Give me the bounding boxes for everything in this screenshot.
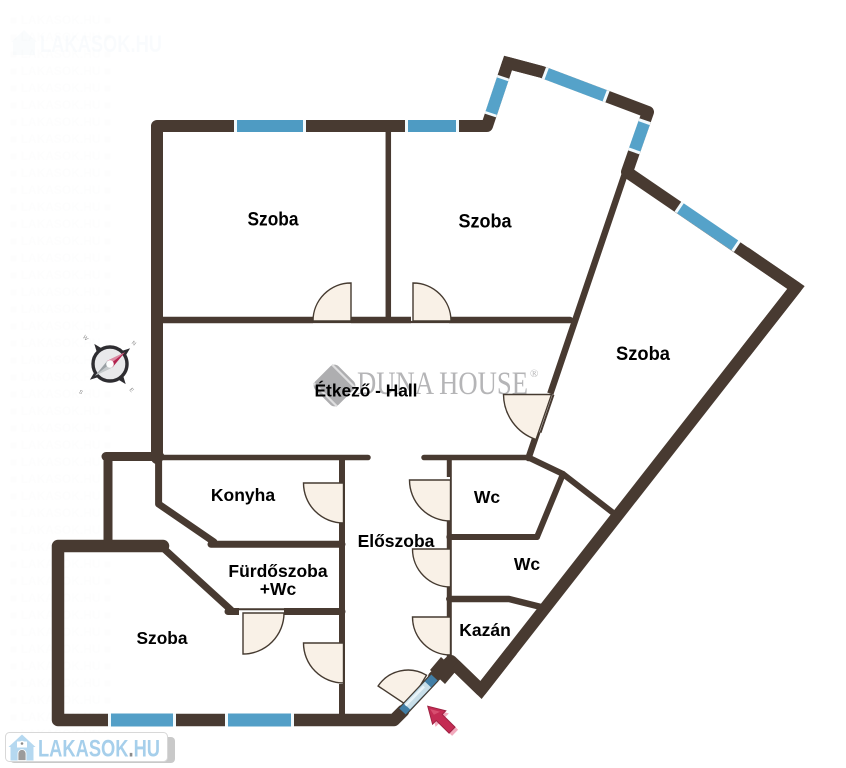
svg-text:■ LAKASOK.HU ■: ■ LAKASOK.HU ■ (10, 489, 111, 503)
svg-text:■ LAKASOK.HU ■: ■ LAKASOK.HU ■ (10, 472, 111, 486)
svg-text:■ LAKASOK.HU ■: ■ LAKASOK.HU ■ (10, 149, 111, 163)
svg-text:■ LAKASOK.HU ■: ■ LAKASOK.HU ■ (10, 285, 111, 299)
svg-text:■ LAKASOK.HU ■: ■ LAKASOK.HU ■ (10, 13, 111, 27)
svg-text:Kazán: Kazán (459, 620, 511, 640)
svg-text:LAKASOK.HU: LAKASOK.HU (38, 736, 160, 763)
svg-text:■ LAKASOK.HU ■: ■ LAKASOK.HU ■ (10, 64, 111, 78)
svg-text:■ LAKASOK.HU ■: ■ LAKASOK.HU ■ (10, 319, 111, 333)
svg-text:Fürdőszoba: Fürdőszoba (228, 561, 327, 581)
svg-text:Szoba: Szoba (248, 209, 299, 231)
svg-text:Wc: Wc (474, 487, 501, 507)
svg-text:■ LAKASOK.HU ■: ■ LAKASOK.HU ■ (10, 166, 111, 180)
svg-text:■ LAKASOK.HU ■: ■ LAKASOK.HU ■ (10, 302, 111, 316)
svg-text:LAKASOK.HU: LAKASOK.HU (40, 31, 162, 58)
svg-text:Szoba: Szoba (137, 628, 188, 648)
svg-text:■ LAKASOK.HU ■: ■ LAKASOK.HU ■ (10, 183, 111, 197)
svg-text:■ LAKASOK.HU ■: ■ LAKASOK.HU ■ (10, 421, 111, 435)
svg-text:■ LAKASOK.HU ■: ■ LAKASOK.HU ■ (10, 81, 111, 95)
svg-text:■ LAKASOK.HU ■: ■ LAKASOK.HU ■ (10, 234, 111, 248)
svg-text:Előszoba: Előszoba (358, 531, 435, 551)
svg-text:■ LAKASOK.HU ■: ■ LAKASOK.HU ■ (10, 115, 111, 129)
svg-text:Szoba: Szoba (459, 211, 512, 233)
svg-text:■ LAKASOK.HU ■: ■ LAKASOK.HU ■ (10, 438, 111, 452)
svg-text:■ LAKASOK.HU ■: ■ LAKASOK.HU ■ (10, 506, 111, 520)
svg-text:■ LAKASOK.HU ■: ■ LAKASOK.HU ■ (10, 251, 111, 265)
svg-text:■ LAKASOK.HU ■: ■ LAKASOK.HU ■ (10, 404, 111, 418)
svg-text:■ LAKASOK.HU ■: ■ LAKASOK.HU ■ (10, 455, 111, 469)
svg-text:■ LAKASOK.HU ■: ■ LAKASOK.HU ■ (10, 217, 111, 231)
svg-text:®: ® (530, 368, 538, 380)
svg-text:Wc: Wc (514, 554, 541, 574)
svg-text:■ LAKASOK.HU ■: ■ LAKASOK.HU ■ (10, 132, 111, 146)
svg-text:■ LAKASOK.HU ■: ■ LAKASOK.HU ■ (10, 387, 111, 401)
svg-text:Szoba: Szoba (616, 343, 670, 365)
svg-text:Étkező - Hall: Étkező - Hall (315, 380, 418, 401)
svg-text:■ LAKASOK.HU ■: ■ LAKASOK.HU ■ (10, 98, 111, 112)
svg-text:■ LAKASOK.HU ■: ■ LAKASOK.HU ■ (10, 200, 111, 214)
svg-text:■ LAKASOK.HU ■: ■ LAKASOK.HU ■ (10, 268, 111, 282)
svg-text:+Wc: +Wc (260, 579, 297, 599)
svg-text:Konyha: Konyha (211, 485, 275, 505)
svg-text:■ LAKASOK.HU ■: ■ LAKASOK.HU ■ (10, 523, 111, 537)
